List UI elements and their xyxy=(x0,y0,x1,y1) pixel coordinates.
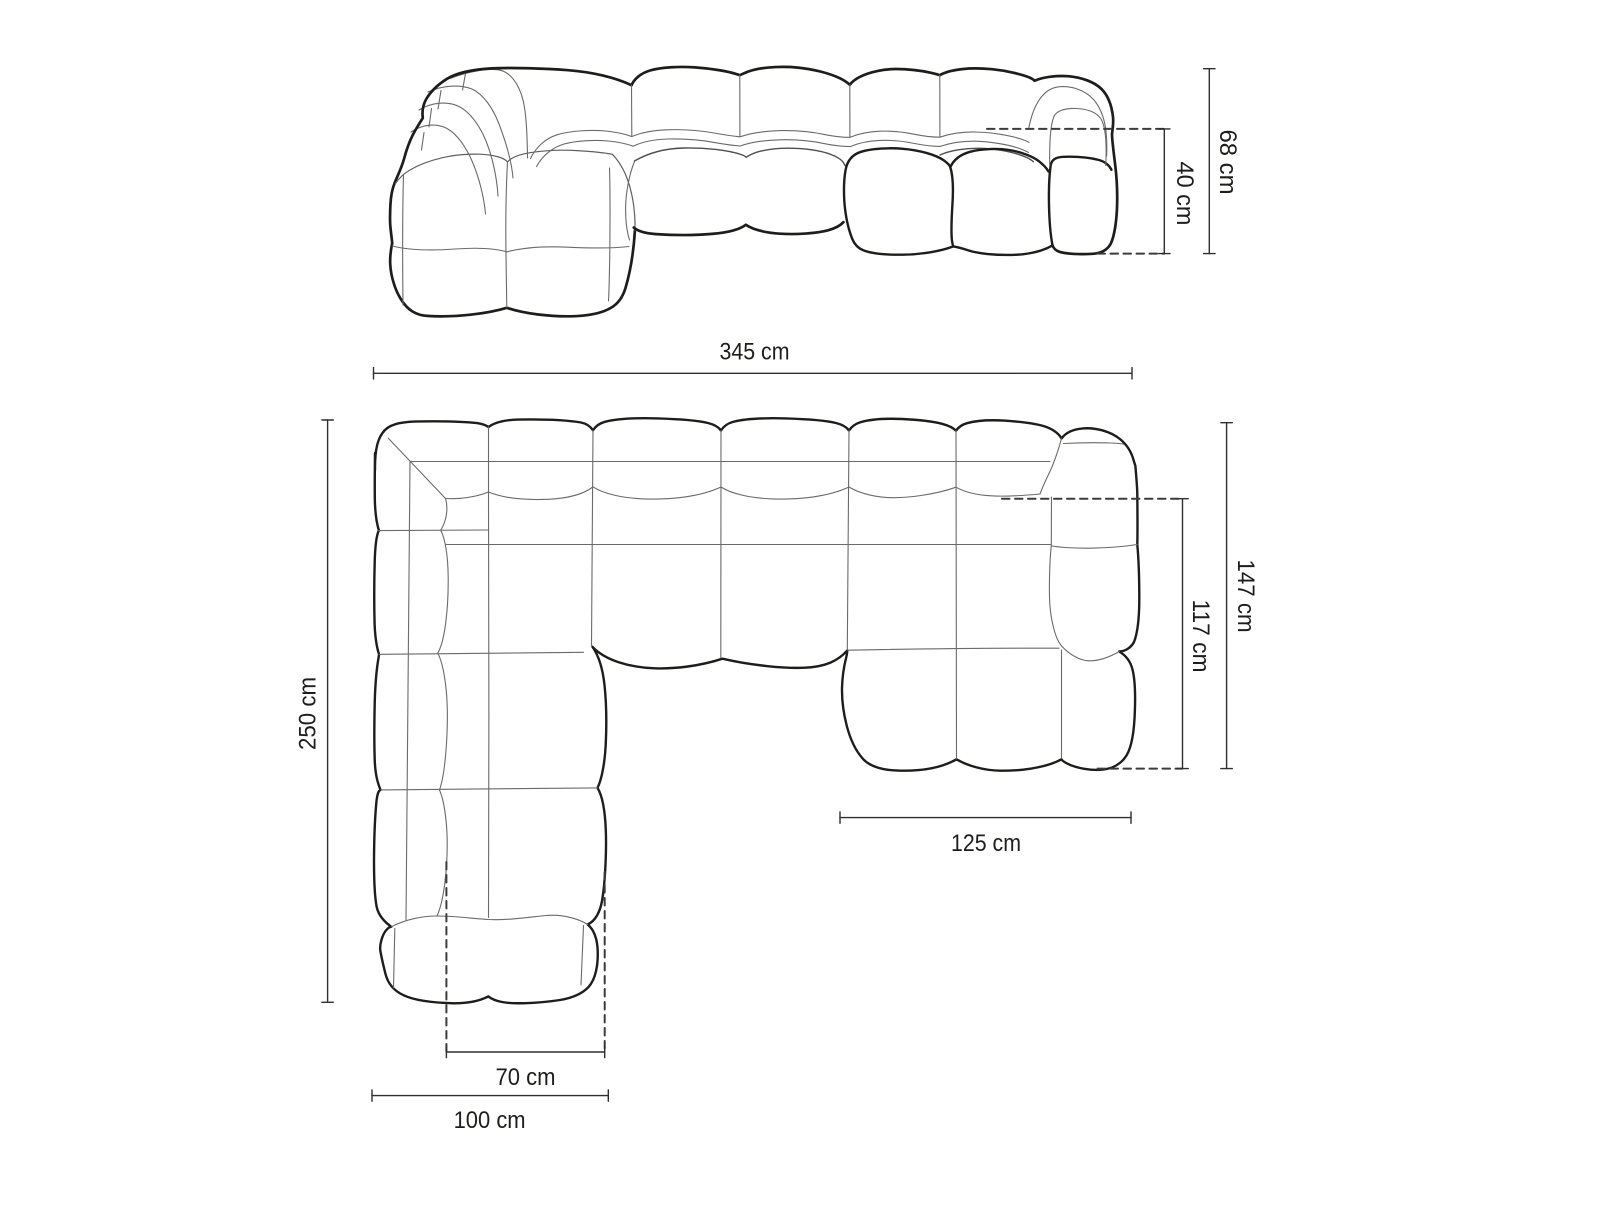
svg-text:40 cm: 40 cm xyxy=(1171,162,1198,226)
svg-text:147 cm: 147 cm xyxy=(1232,560,1259,633)
svg-text:345 cm: 345 cm xyxy=(720,339,790,366)
svg-text:100 cm: 100 cm xyxy=(454,1107,526,1134)
svg-text:117 cm: 117 cm xyxy=(1187,600,1214,673)
svg-text:125 cm: 125 cm xyxy=(951,830,1021,857)
svg-text:70 cm: 70 cm xyxy=(496,1064,556,1091)
svg-text:68 cm: 68 cm xyxy=(1214,130,1241,195)
svg-text:250 cm: 250 cm xyxy=(295,677,322,750)
